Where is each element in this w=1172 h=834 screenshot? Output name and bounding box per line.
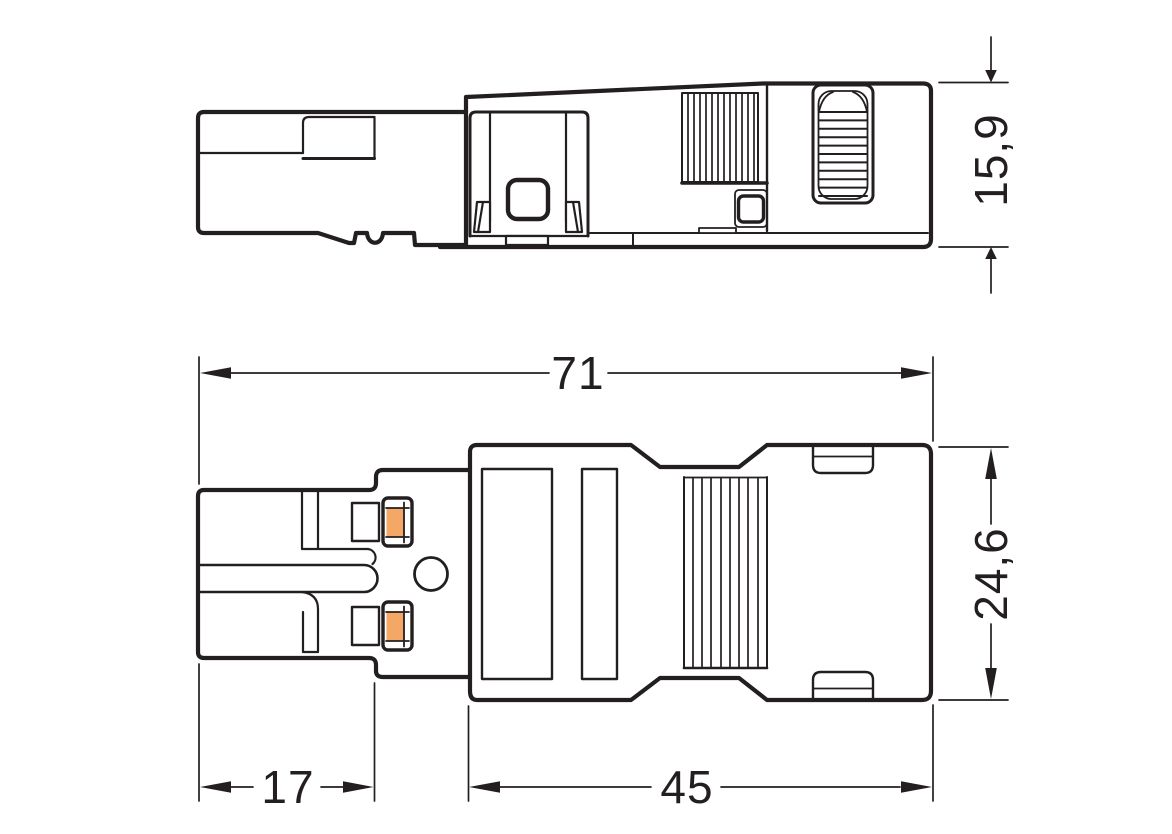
connector-drawing: 15,9 (0, 0, 1172, 834)
dim-overall-length-label: 71 (551, 347, 604, 399)
pin-slot (198, 565, 378, 592)
latch-cutout-top (813, 446, 873, 473)
plan-rear-outline (470, 445, 931, 700)
bottom-face-edge (590, 233, 928, 245)
contact-orange-bottom (387, 612, 405, 641)
bottom-ledge (699, 228, 736, 233)
arrowhead (469, 781, 500, 793)
side-snout-outline (198, 112, 466, 245)
slider-serrations (819, 112, 867, 196)
latch-cutout-bottom (813, 672, 873, 699)
arrowhead (901, 781, 932, 793)
locking-slider (813, 85, 873, 203)
drawing-canvas: 15,9 (0, 0, 1172, 834)
dim-height-label: 15,9 (965, 113, 1017, 207)
arrowhead (200, 781, 231, 793)
dim-height: 15,9 (939, 37, 1017, 293)
arrowhead (985, 668, 997, 699)
arrowhead (985, 448, 997, 479)
body-window-left (482, 469, 552, 679)
arrowhead (985, 70, 997, 83)
center-hole (415, 558, 448, 591)
corrugation-side (682, 93, 767, 183)
contact-window-bottom (352, 607, 379, 645)
side-key-block (303, 117, 375, 159)
contact-window-top (352, 503, 379, 541)
side-view: 15,9 (198, 37, 1017, 293)
latch-base-tab (506, 236, 548, 245)
dim-front-length: 17 (199, 664, 375, 813)
keying-channel-bottom (302, 592, 318, 652)
arrowhead (200, 367, 231, 379)
contact-bottom (383, 602, 412, 650)
dim-width-label: 24,6 (965, 527, 1017, 621)
side-body-outline (440, 84, 931, 248)
dim-overall-length: 71 (199, 347, 933, 484)
arrowhead (985, 247, 997, 259)
dim-width: 24,6 (939, 447, 1017, 700)
contact-orange-top (387, 508, 405, 537)
plan-view: 71 24,6 17 45 (198, 347, 1017, 813)
arrowhead (901, 367, 932, 379)
dim-body-length-label: 45 (660, 761, 713, 813)
corrugation-plan (684, 477, 767, 668)
latch-release-button (508, 180, 548, 219)
clamp-window (735, 190, 767, 227)
body-window-right (582, 469, 617, 679)
dim-body-length: 45 (469, 705, 934, 813)
arrowhead (343, 781, 374, 793)
contact-top (383, 498, 412, 546)
dim-front-length-label: 17 (261, 761, 314, 813)
